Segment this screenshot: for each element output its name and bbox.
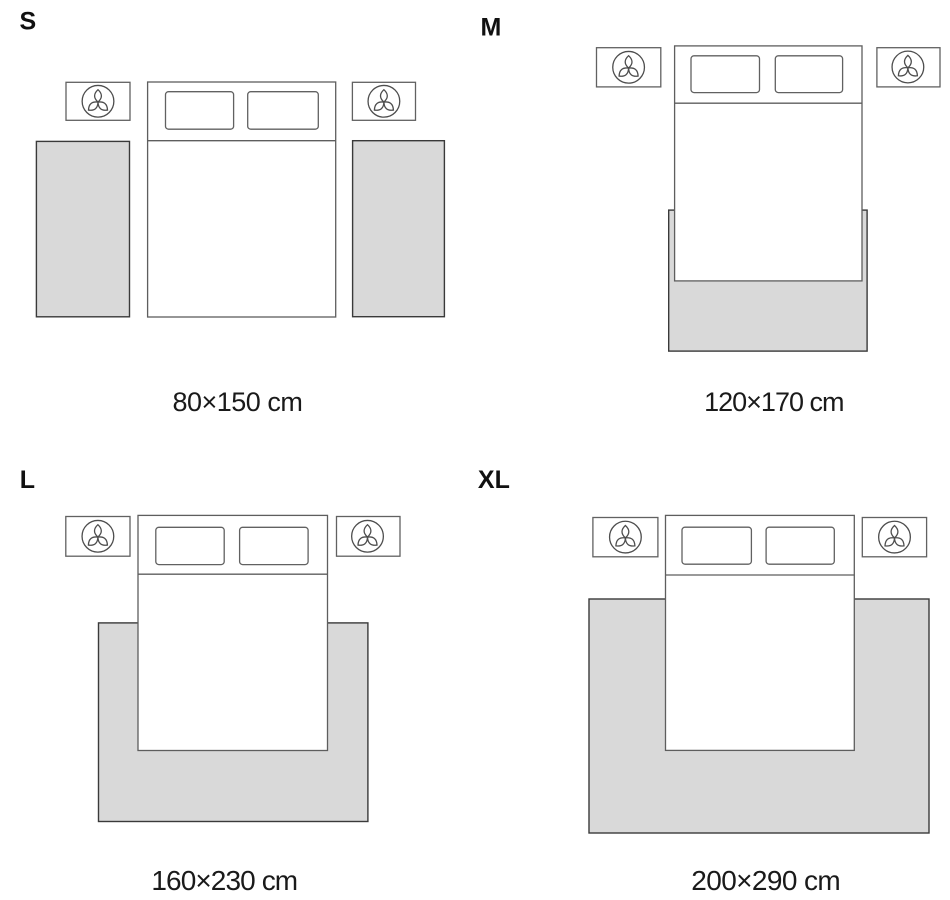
svg-text:160×230 cm: 160×230 cm	[151, 865, 297, 896]
svg-text:XL: XL	[478, 466, 510, 494]
svg-text:L: L	[20, 466, 35, 494]
svg-text:S: S	[20, 8, 37, 36]
svg-text:200×290 cm: 200×290 cm	[691, 865, 840, 896]
svg-text:120×170 cm: 120×170 cm	[704, 387, 843, 417]
svg-text:80×150 cm: 80×150 cm	[172, 387, 302, 417]
svg-text:M: M	[481, 13, 502, 41]
